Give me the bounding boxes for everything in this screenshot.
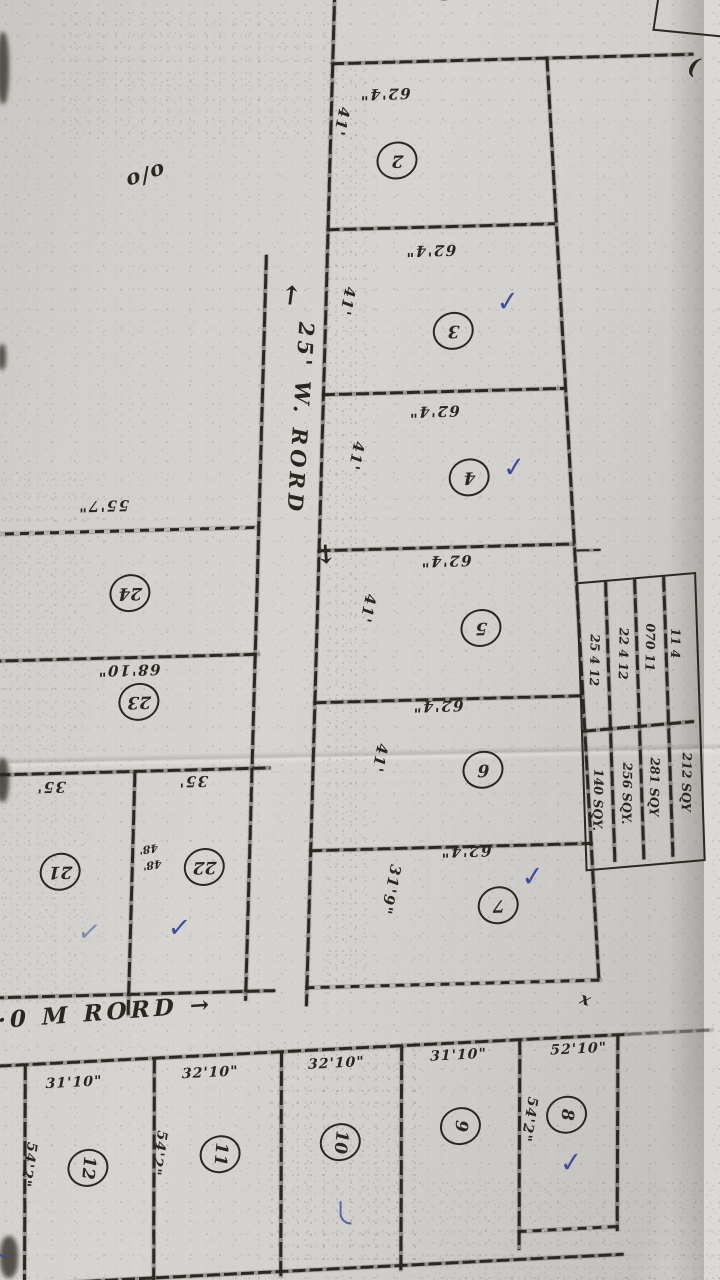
plot-number-text: 7 <box>492 895 504 915</box>
plot-24-number: 24 <box>109 574 151 613</box>
pen-stroke <box>0 1234 7 1259</box>
plot-23-width-dim: 68'10" <box>97 660 161 680</box>
road-left-boundary <box>244 255 268 1001</box>
plot-22-width-dim: 35' <box>178 772 208 791</box>
pen-tick: ( <box>685 53 703 81</box>
plot-8-width-dim: 52'10" <box>550 1040 607 1059</box>
plot-number-text: 11 <box>209 1142 231 1166</box>
plot-11-number: 11 <box>200 1134 241 1174</box>
strip-divider <box>518 1040 522 1250</box>
plot-9-number: 9 <box>440 1106 481 1146</box>
plot-12-depth-dim: 54'2" <box>17 1141 40 1188</box>
area-table: 25 4 12 22 4 12 070 11 11 4 140 SQY. 256… <box>576 572 706 871</box>
partial-shape-top-right <box>652 0 720 40</box>
boundary-line <box>322 387 565 396</box>
plot-7-depth-dim: 31'9" <box>377 863 405 916</box>
table-size-cell: 070 11 <box>642 623 658 671</box>
plot-10-width-dim: 32'10" <box>308 1054 365 1073</box>
plot-number-text: 23 <box>127 692 151 713</box>
check-mark: ✓ <box>495 285 520 319</box>
table-size-cell: 25 4 12 <box>587 634 603 687</box>
scanned-plot-map-photo: ← 25' W. RORD → 2 3 4 5 6 7 62'4" 62'4" … <box>0 0 720 1280</box>
check-mark: ✓ <box>167 912 193 944</box>
plot-depth-note: 48' <box>139 842 159 856</box>
plot-number-text: 12 <box>77 1156 99 1180</box>
table-area-cell: 281 SQY <box>647 757 663 817</box>
plot-number-text: 2 <box>391 150 403 170</box>
plot-3-number: 3 <box>432 311 474 350</box>
table-row-line <box>604 582 616 862</box>
plot-5-depth-dim: 41' <box>356 593 380 625</box>
bottom-road-name: 6·0 M RORD <box>0 993 178 1035</box>
plan-sheet: ← 25' W. RORD → 2 3 4 5 6 7 62'4" 62'4" … <box>0 0 720 1280</box>
plot-11-width-dim: 32'10" <box>182 1063 239 1082</box>
plot-5-width-dim: 62'4" <box>420 551 472 570</box>
pen-stroke <box>339 1201 351 1226</box>
strip-east-boundary <box>616 1035 620 1231</box>
plot-21-width-dim: 35' <box>36 778 66 797</box>
road-name-label: 25' W. RORD <box>282 322 319 516</box>
plot-22-number: 22 <box>183 847 225 886</box>
plot-3-width-dim: 62'4" <box>405 241 457 260</box>
table-area-cell: 256 SQY. <box>619 762 635 825</box>
tick-line <box>577 549 601 552</box>
bottom-road-arrow: → <box>189 991 213 1020</box>
road-arrow-up: ← <box>274 283 307 307</box>
plot-6-width-dim: 62'4" <box>412 696 464 715</box>
plot-21-number: 21 <box>39 852 81 891</box>
plot-number-text: 8 <box>556 1108 577 1121</box>
plot-4-number: 4 <box>448 458 490 497</box>
plot-number-text: 22 <box>192 857 216 878</box>
plot-7-width-dim: 62'4" <box>440 842 492 861</box>
plot-2-number: 2 <box>376 141 418 180</box>
bottom-plot-strip: 6·0 M RORD → 31'10" 32'10" 32'10" 31'10"… <box>0 1002 720 1280</box>
boundary-line <box>331 53 693 65</box>
strip-divider <box>279 1052 283 1277</box>
plot-5-number: 5 <box>460 608 502 647</box>
plot-number-text: 24 <box>118 583 142 604</box>
road-right-boundary <box>305 0 336 1006</box>
strip-divider <box>399 1046 403 1271</box>
table-row-line <box>633 579 645 859</box>
plot-number-text: 10 <box>329 1130 351 1154</box>
plot-21-22-divider <box>127 772 137 1016</box>
plot-2-width-dim: 62'4" <box>359 84 411 103</box>
road-arrow-down: → <box>310 541 342 567</box>
plot-3-depth-dim: 41' <box>336 286 360 318</box>
plot-4-width-dim: 62'4" <box>408 402 460 421</box>
plot-6-number: 6 <box>462 750 504 789</box>
table-size-cell: 11 4 <box>668 628 684 659</box>
corner-percent-mark: o/o <box>122 158 168 195</box>
plot-11-depth-dim: 54'2" <box>147 1130 170 1177</box>
plot-7-number: 7 <box>477 886 519 925</box>
plot-number-text: 21 <box>48 861 72 882</box>
plot-2-depth-dim: 41' <box>330 106 354 138</box>
plot-23-number: 23 <box>118 682 160 721</box>
plot-6-depth-dim: 41' <box>368 742 392 774</box>
plot-24-width-dim: 55'7" <box>78 496 130 515</box>
plot-depth-note: 48' <box>142 858 162 872</box>
strip-north-boundary-ext <box>628 1028 713 1035</box>
check-mark: ✓ <box>502 451 527 485</box>
plot-number-text: 4 <box>463 467 475 487</box>
plot-12-number: 12 <box>67 1148 108 1188</box>
table-area-cell: 212 SQY <box>679 752 695 812</box>
boundary-line <box>327 222 555 231</box>
plot-8-south-boundary <box>518 1225 618 1233</box>
table-row-line <box>662 577 674 857</box>
plot-number-text: 5 <box>475 618 487 638</box>
plot-9-width-dim: 31'10" <box>430 1046 487 1065</box>
plot-12-width-dim: 31'10" <box>46 1073 103 1092</box>
boundary-line <box>0 526 257 536</box>
table-size-cell: 22 4 12 <box>616 627 632 680</box>
plot-1-number-circle <box>424 0 466 1</box>
plot-8-number: 8 <box>546 1095 587 1135</box>
plot-number-text: 6 <box>477 760 489 780</box>
boundary-line <box>305 979 601 990</box>
check-mark: ✓ <box>559 1146 584 1180</box>
boundary-line <box>318 543 575 553</box>
check-mark: ✓ <box>520 860 545 894</box>
check-mark: ✓ <box>76 916 104 949</box>
table-area-cell: 140 SQY. <box>590 769 606 832</box>
plot-number-text: 3 <box>447 321 459 341</box>
plot-number-text: 9 <box>450 1120 471 1133</box>
plot-4-depth-dim: 41' <box>344 440 368 472</box>
plot-10-number: 10 <box>320 1122 361 1162</box>
